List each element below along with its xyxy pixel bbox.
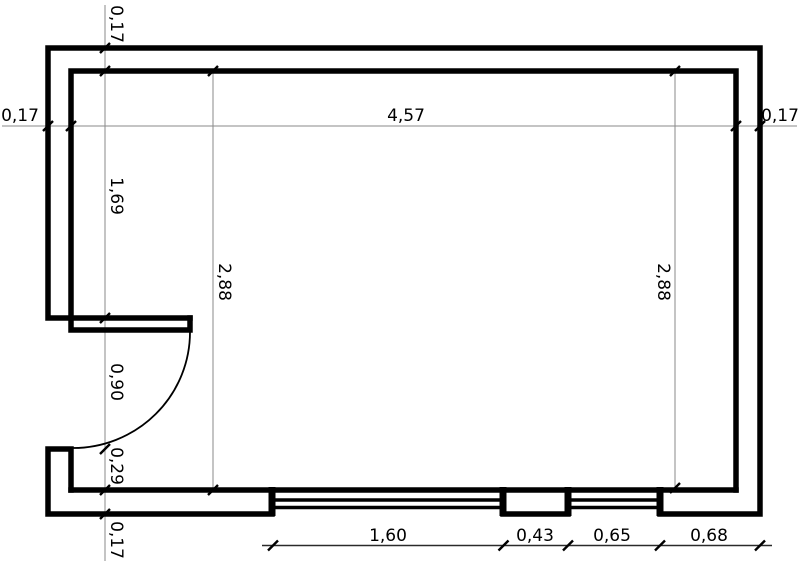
dim-label-right-segment-width: 0,68 — [690, 526, 728, 546]
floor-plan-canvas: 0,17 0,17 4,57 0,17 1,69 2,88 2,88 0,90 … — [0, 0, 800, 565]
dim-label-left-wall-thickness: 0,17 — [1, 106, 39, 126]
dim-label-upper-wall-segment: 1,69 — [106, 177, 126, 215]
dim-label-lower-wall-segment: 0,29 — [106, 447, 126, 485]
dim-label-door-opening: 0,90 — [106, 363, 126, 401]
dim-label-interior-height-left: 2,88 — [214, 263, 234, 301]
dim-label-window2-width: 0,65 — [593, 526, 631, 546]
dim-label-window1-width: 1,60 — [369, 526, 407, 546]
dim-label-pier-width: 0,43 — [516, 526, 554, 546]
door-swing-arc — [73, 332, 190, 448]
wall-bottom-left-segment — [48, 449, 272, 514]
dim-label-interior-width: 4,57 — [387, 106, 425, 126]
dim-label-bottom-wall-thickness: 0,17 — [106, 521, 126, 559]
dim-label-interior-height-right: 2,88 — [653, 263, 673, 301]
dim-label-top-wall-thickness: 0,17 — [106, 5, 126, 43]
floor-plan-page: 0,17 0,17 4,57 0,17 1,69 2,88 2,88 0,90 … — [0, 0, 800, 565]
wall-inner-outline — [71, 71, 736, 490]
dim-label-right-wall-thickness: 0,17 — [761, 106, 799, 126]
